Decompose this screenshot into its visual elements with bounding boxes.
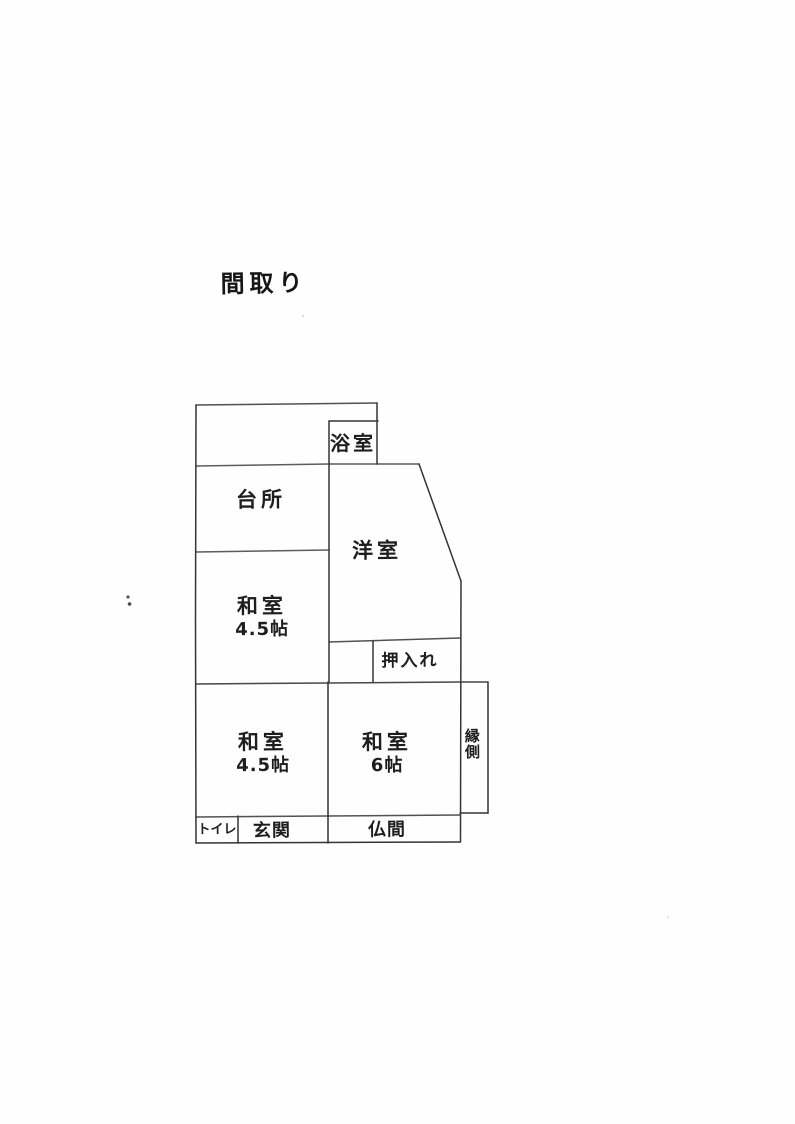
room-name: 和室 bbox=[238, 730, 288, 755]
room-label-altar-room: 仏間 bbox=[368, 819, 406, 841]
room-label-japanese-room-lower-right: 和室 6帖 bbox=[362, 730, 412, 777]
room-label-bath: 浴室 bbox=[330, 432, 376, 456]
room-label-western-room: 洋室 bbox=[352, 538, 402, 563]
room-label-toilet: トイレ bbox=[197, 822, 236, 838]
room-label-veranda: 縁側 bbox=[462, 728, 480, 760]
room-label-japanese-room-upper: 和室 4.5帖 bbox=[235, 594, 289, 641]
room-name: 和室 bbox=[237, 594, 287, 619]
room-size: 4.5帖 bbox=[236, 754, 290, 776]
room-size: 6帖 bbox=[362, 755, 412, 777]
floorplan-title: 間取り bbox=[220, 263, 308, 300]
room-label-entrance: 玄関 bbox=[253, 820, 291, 842]
scanned-document-page: 間取り 浴室 台所 洋室 和室 4.5帖 押入れ 和室 4.5帖 和室 6帖 縁… bbox=[0, 0, 795, 1124]
room-size: 4.5帖 bbox=[235, 618, 289, 640]
room-label-closet: 押入れ bbox=[381, 651, 438, 672]
room-name: 和室 bbox=[362, 730, 412, 755]
room-label-japanese-room-lower-left: 和室 4.5帖 bbox=[236, 730, 290, 777]
room-label-kitchen: 台所 bbox=[236, 487, 286, 512]
